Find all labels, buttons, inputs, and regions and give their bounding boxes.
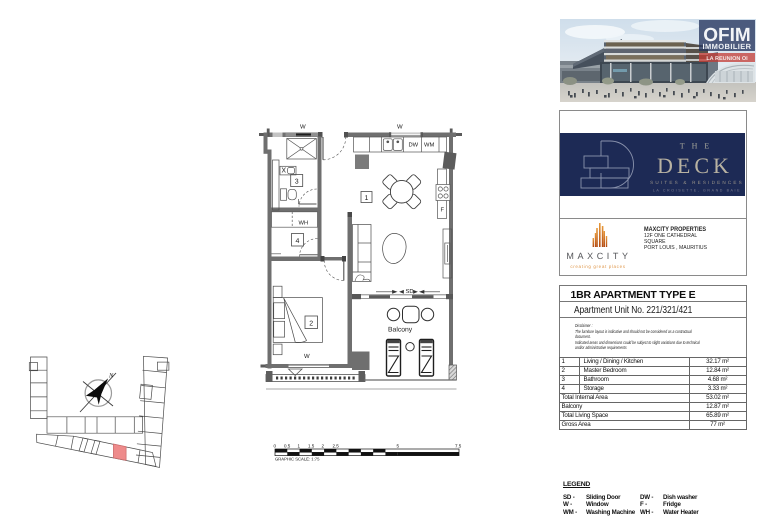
svg-text:LA REUNION OI: LA REUNION OI xyxy=(706,56,748,62)
svg-text:MAXCITY: MAXCITY xyxy=(566,251,631,261)
svg-text:WH: WH xyxy=(299,221,309,227)
svg-text:GRAPHIC SCALE: 1:75: GRAPHIC SCALE: 1:75 xyxy=(275,457,320,462)
svg-text:4: 4 xyxy=(296,238,300,245)
svg-text:1: 1 xyxy=(298,444,301,449)
svg-text:SUITES & RESIDENCES: SUITES & RESIDENCES xyxy=(650,180,744,185)
svg-text:creating great places: creating great places xyxy=(570,264,625,269)
svg-text:W: W xyxy=(300,124,306,131)
svg-text:7.5: 7.5 xyxy=(455,444,462,449)
svg-text:DECK: DECK xyxy=(657,153,733,178)
svg-text:1.5: 1.5 xyxy=(308,444,315,449)
svg-text:IMMOBILIER: IMMOBILIER xyxy=(703,42,752,51)
svg-text:5: 5 xyxy=(397,444,400,449)
svg-text:1: 1 xyxy=(365,195,369,202)
svg-text:2: 2 xyxy=(322,444,325,449)
svg-text:DW: DW xyxy=(409,143,419,149)
svg-text:W: W xyxy=(304,353,310,360)
svg-text:N: N xyxy=(108,373,114,380)
svg-text:0: 0 xyxy=(274,444,277,449)
svg-text:SD: SD xyxy=(406,288,414,295)
svg-text:W: W xyxy=(397,124,403,131)
svg-text:2: 2 xyxy=(309,320,313,327)
svg-text:3: 3 xyxy=(295,179,299,186)
svg-text:THE: THE xyxy=(680,142,717,151)
svg-text:0.5: 0.5 xyxy=(284,444,291,449)
svg-text:2.5: 2.5 xyxy=(333,444,340,449)
svg-text:F: F xyxy=(441,208,445,214)
svg-text:Balcony: Balcony xyxy=(388,327,413,334)
svg-text:WM: WM xyxy=(424,143,434,149)
svg-text:LA CROISETTE, GRAND BAIE: LA CROISETTE, GRAND BAIE xyxy=(653,189,741,193)
